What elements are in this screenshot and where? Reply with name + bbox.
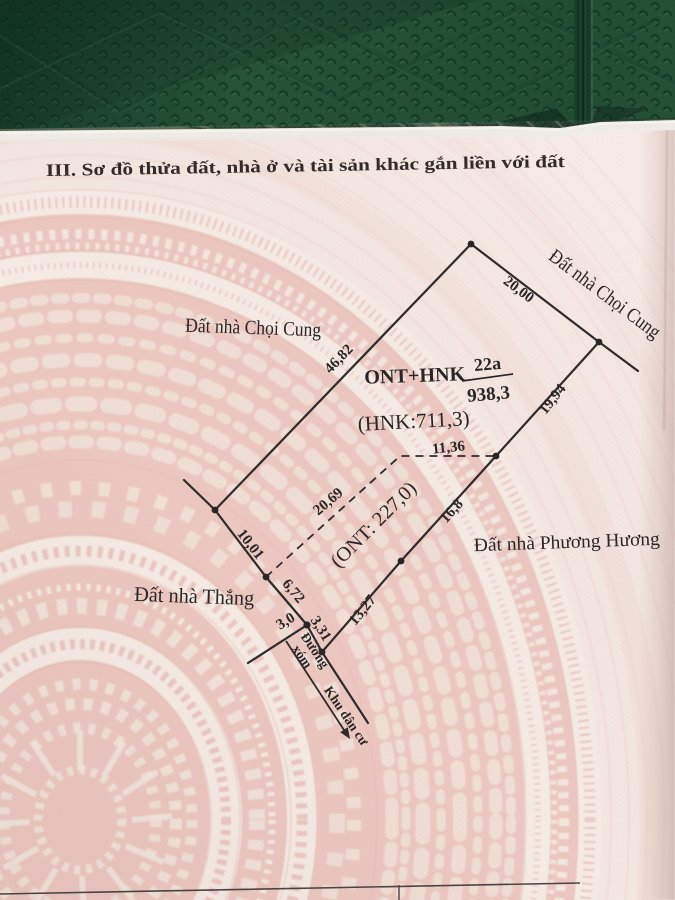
svg-text:ONT+HNK: ONT+HNK [364, 363, 466, 389]
svg-text:22a: 22a [473, 353, 502, 375]
svg-text:938,3: 938,3 [466, 382, 510, 407]
svg-text:Đất nhà Thắng: Đất nhà Thắng [134, 582, 255, 610]
